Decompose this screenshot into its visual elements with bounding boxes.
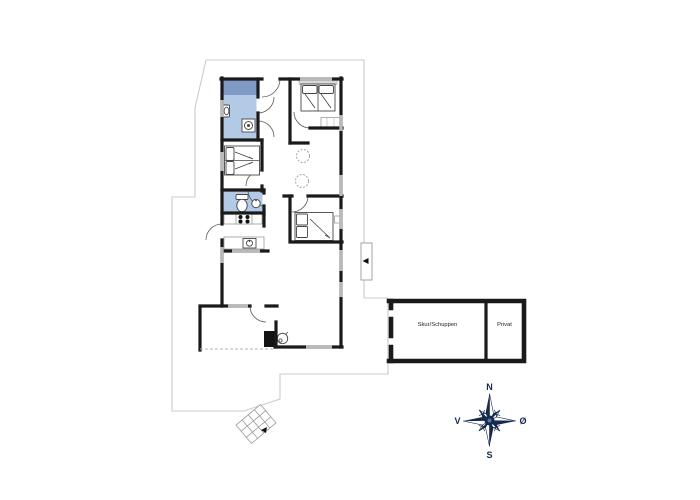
compass-north-label: N bbox=[486, 382, 493, 392]
compass-west-label: V bbox=[454, 416, 460, 426]
shower-area bbox=[224, 81, 257, 96]
bed-icon bbox=[295, 213, 340, 241]
private-label: Privat bbox=[497, 322, 512, 328]
round-table-icon bbox=[296, 175, 309, 188]
outbuilding: Skur/Schuppen Privat bbox=[389, 299, 526, 363]
compass-east-label: Ø bbox=[519, 416, 526, 426]
toilet-icon bbox=[236, 195, 248, 212]
washing-machine-icon bbox=[242, 119, 255, 132]
wardrobe-icon bbox=[321, 118, 340, 128]
wood-stove-icon bbox=[277, 332, 288, 344]
shed-label: Skur/Schuppen bbox=[418, 322, 458, 328]
entrance-platform bbox=[361, 243, 372, 280]
double-bed-icon bbox=[225, 146, 260, 175]
floorplan-drawing: Skur/Schuppen Privat bbox=[0, 0, 700, 500]
kitchen-sink-icon bbox=[243, 239, 256, 249]
compass-south-label: S bbox=[486, 450, 492, 460]
kitchen bbox=[224, 214, 264, 249]
floorplan-canvas: Skur/Schuppen Privat bbox=[0, 0, 700, 500]
double-bed-icon bbox=[299, 80, 337, 111]
stove-icon bbox=[236, 214, 252, 224]
round-table-icons bbox=[296, 150, 310, 188]
compass-rose: N S V Ø bbox=[454, 382, 526, 460]
washbasin-icon bbox=[252, 199, 260, 207]
property-boundary bbox=[172, 60, 388, 411]
round-table-icon bbox=[297, 150, 310, 163]
chimney-block bbox=[264, 331, 276, 347]
entry-steps bbox=[236, 405, 276, 444]
